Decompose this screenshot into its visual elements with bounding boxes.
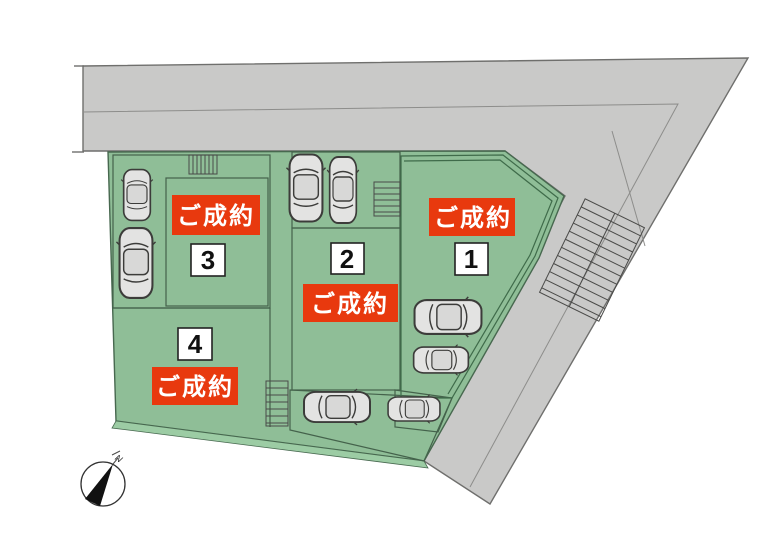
lot-number-label: 3 (201, 245, 215, 275)
car-icon (304, 389, 370, 425)
status-badge-label: ご成約 (156, 373, 234, 401)
site-plan: ご成約 1 2 ご成約 ご成約 3 4 ご成約 N (0, 0, 781, 548)
status-badge-label: ご成約 (311, 290, 389, 318)
status-badge-label: ご成約 (434, 204, 512, 232)
car-icon (415, 297, 482, 337)
car-icon (414, 345, 469, 376)
car-icon (388, 395, 440, 424)
lot-number-label: 2 (340, 244, 354, 274)
car-icon (121, 170, 153, 221)
lot-number-label: 1 (464, 244, 478, 274)
compass-icon: N (81, 451, 125, 506)
north-label: N (113, 453, 124, 465)
car-icon (286, 155, 325, 222)
car-icon (327, 157, 359, 223)
lot-number-label: 4 (188, 329, 203, 359)
status-badge-label: ご成約 (177, 202, 255, 230)
car-icon (116, 228, 155, 298)
